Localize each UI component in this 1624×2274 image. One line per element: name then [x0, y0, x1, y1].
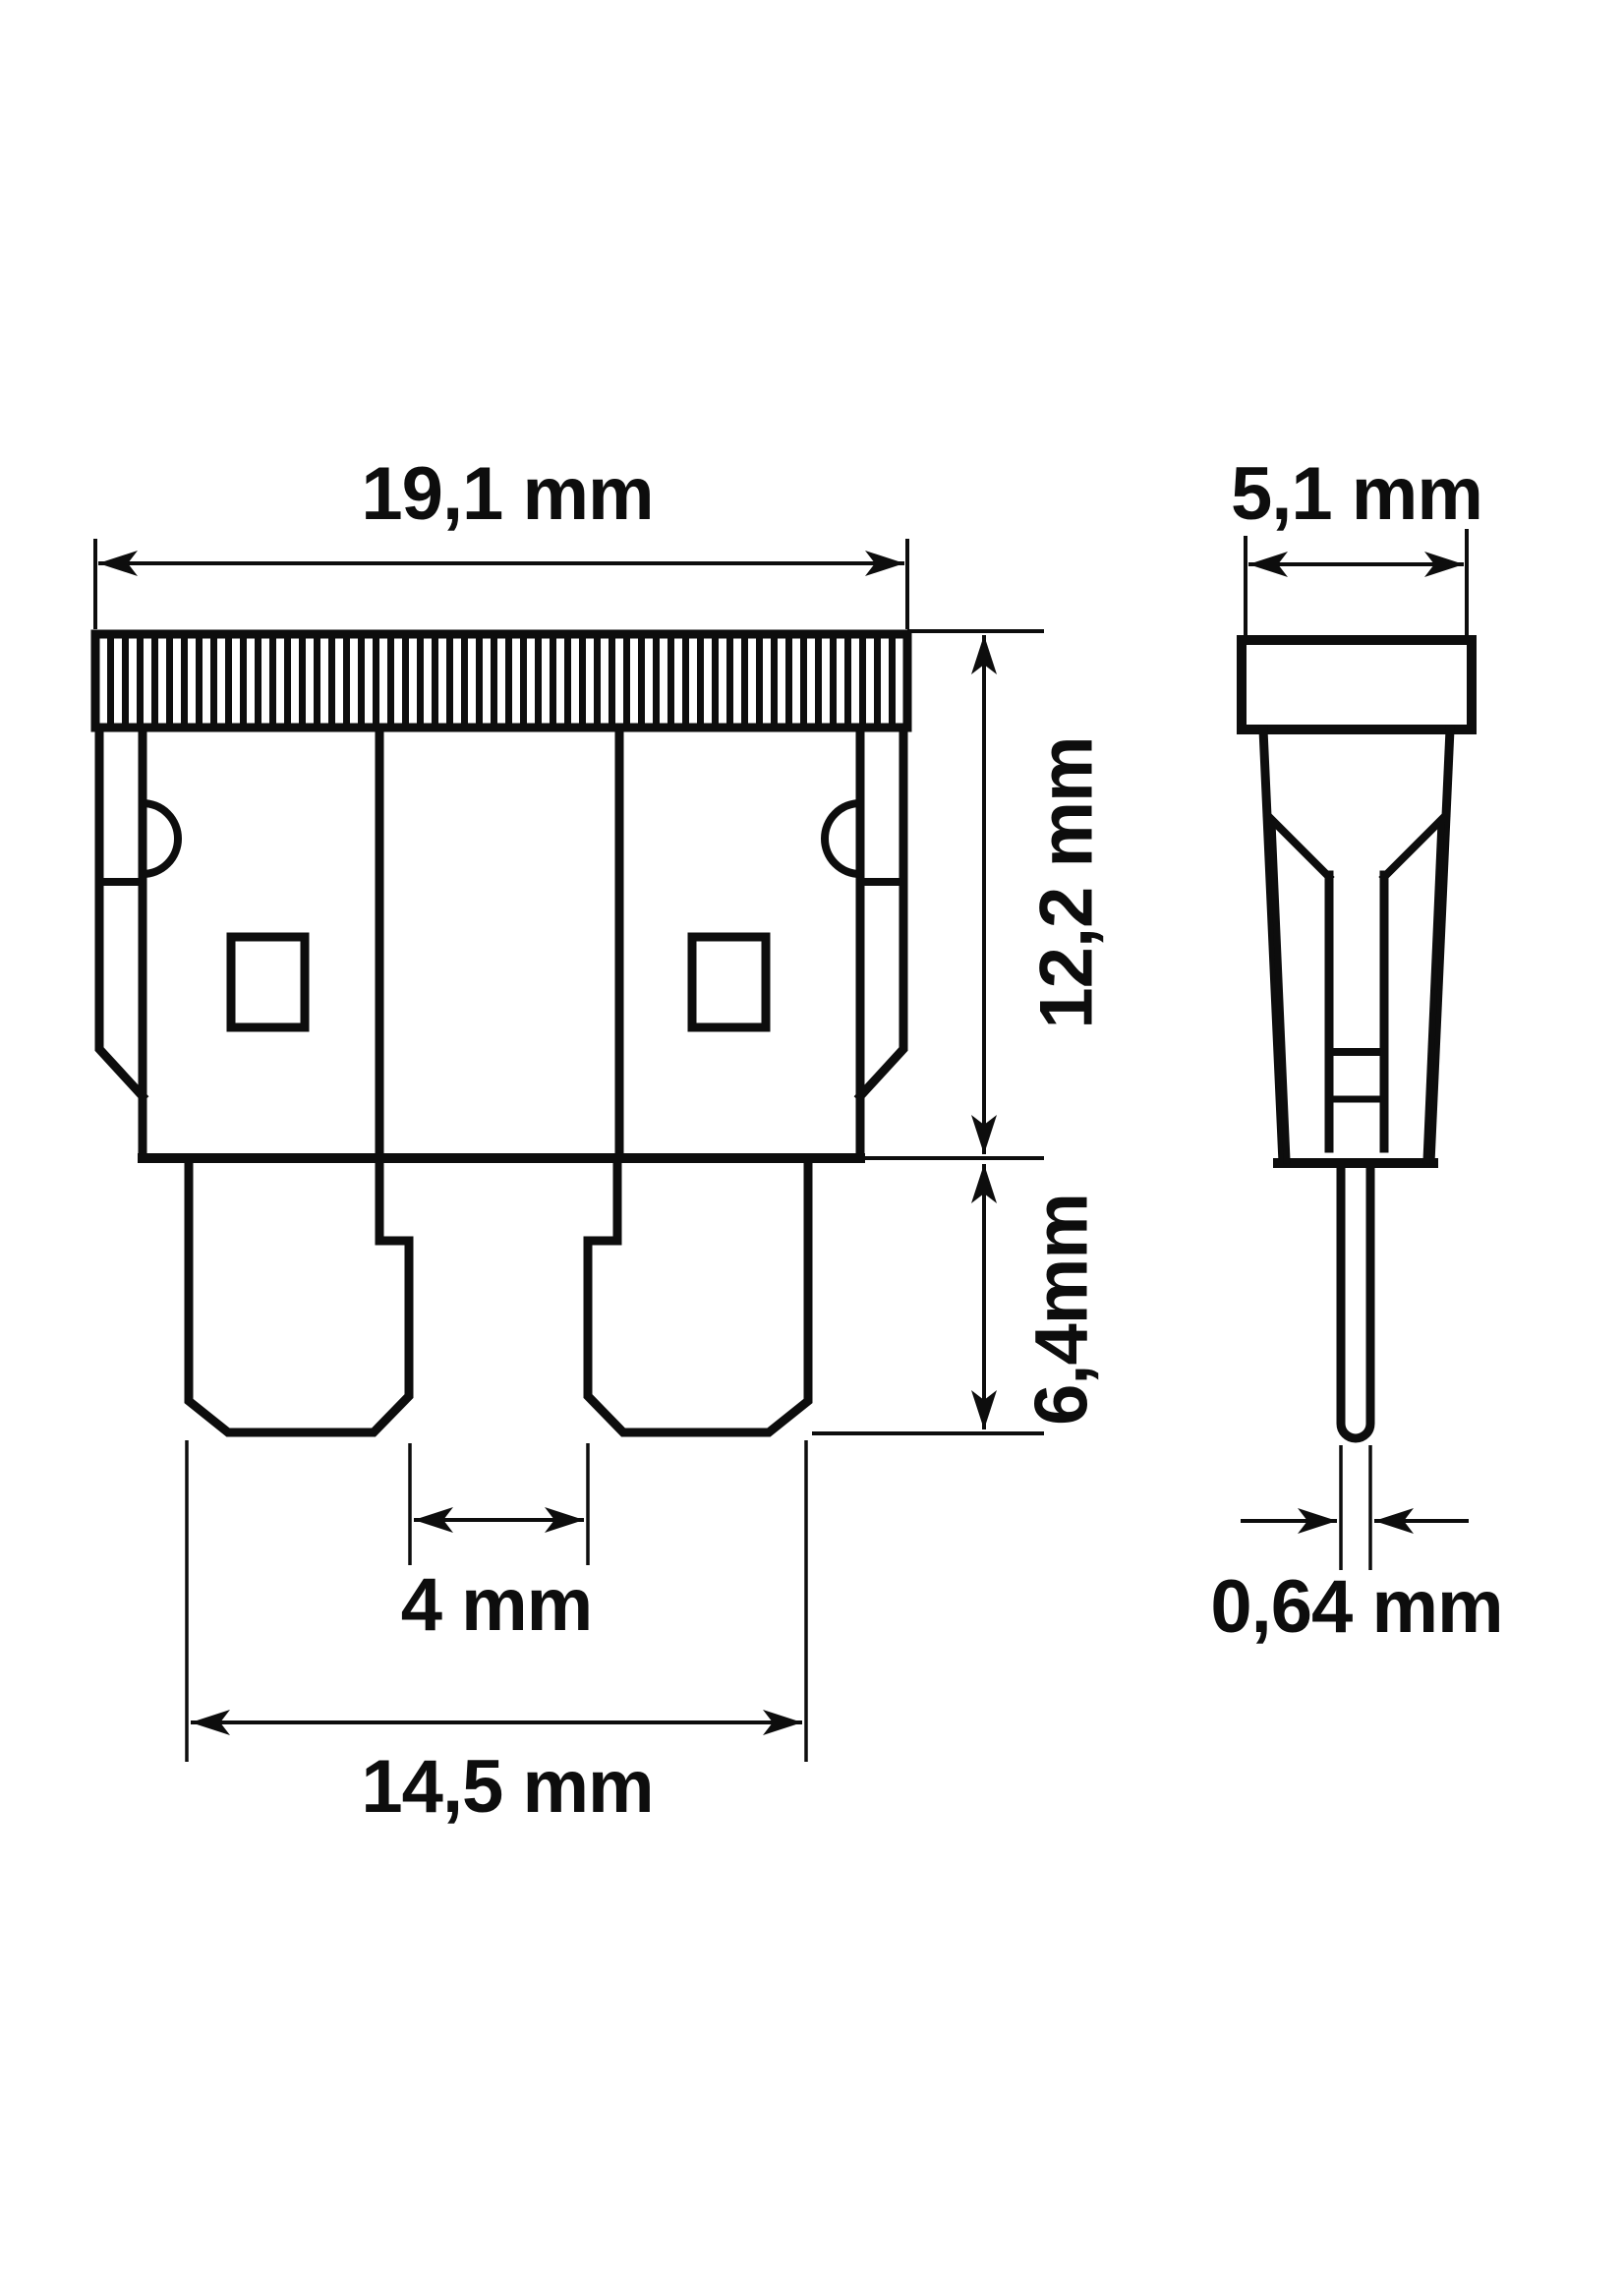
left-tab-latch-arc — [143, 803, 178, 874]
left-window — [231, 937, 305, 1027]
fuse-front-view — [95, 634, 907, 1432]
gap-dim-label: 4 mm — [401, 1563, 593, 1647]
grip-hatch-band — [99, 638, 903, 724]
side-blade-pin — [1341, 1163, 1370, 1438]
thickness-dim-label: 5,1 mm — [1231, 452, 1482, 536]
span-dim-label: 14,5 mm — [361, 1745, 653, 1829]
right-blade-outline — [588, 1158, 808, 1432]
width-dim-label: 19,1 mm — [361, 452, 653, 536]
right-window — [692, 937, 766, 1027]
blade-length-dim-label: 6,4mm — [1020, 1194, 1104, 1426]
left-tab-outer-edge — [99, 728, 143, 1096]
body-height-dim-label: 12,2 mm — [1025, 736, 1109, 1028]
fuse-dimension-drawing: 19,1 mm 12,2 mm 6,4mm 4 mm 14,5 mm — [0, 0, 1624, 2274]
left-blade-outline — [189, 1158, 409, 1432]
right-tab-latch-arc — [825, 803, 860, 874]
fuse-side-view — [1242, 640, 1472, 1438]
right-tab-outer-edge — [860, 728, 903, 1096]
drawing-svg: 19,1 mm 12,2 mm 6,4mm 4 mm 14,5 mm — [0, 0, 1624, 2274]
blade-thickness-dim-label: 0,64 mm — [1210, 1565, 1502, 1649]
side-cap — [1242, 640, 1472, 729]
